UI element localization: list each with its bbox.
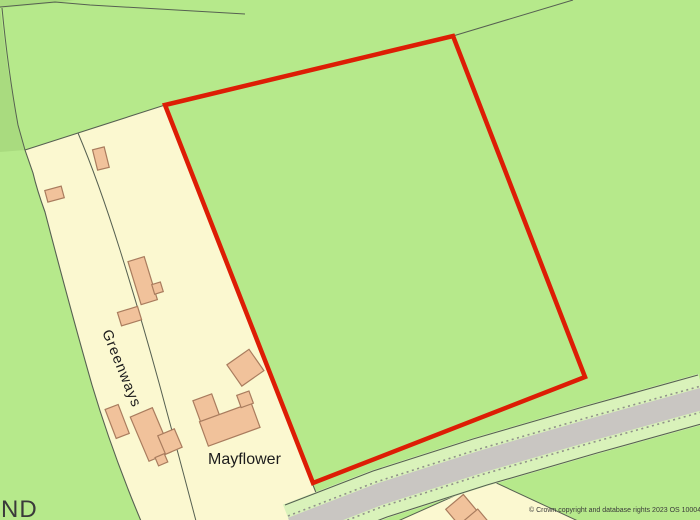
map-viewport[interactable]: Greenways Mayflower ND © Crown copyright… [0,0,700,520]
copyright-notice: © Crown copyright and database rights 20… [529,506,700,514]
edge-partial-label: ND [1,496,38,520]
map-canvas: Greenways Mayflower ND © Crown copyright… [0,0,700,520]
property-name-label: Mayflower [208,451,282,468]
